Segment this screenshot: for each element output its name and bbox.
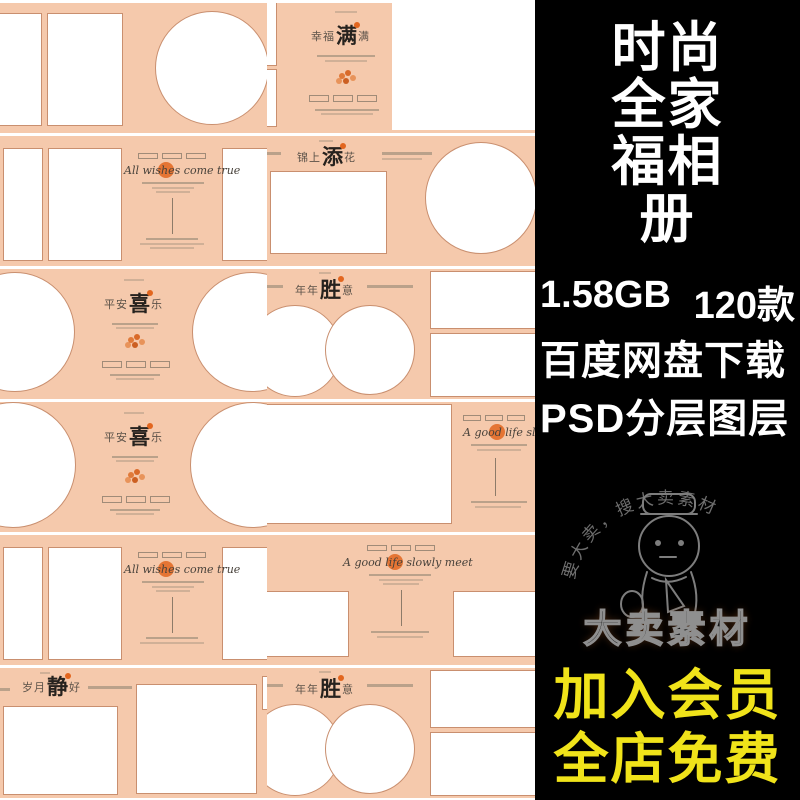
album-title-pre: 平安 bbox=[104, 296, 128, 312]
template-grid: 幸福 满 满 bbox=[0, 0, 535, 800]
photo-placeholder-circle bbox=[155, 11, 267, 125]
decor-line bbox=[267, 684, 283, 687]
album-title-pre: 岁月 bbox=[22, 679, 46, 695]
watermark-brand: 大卖素材 bbox=[535, 598, 800, 653]
stamp-box bbox=[102, 361, 122, 368]
decor-line bbox=[382, 158, 422, 160]
product-promo-image: 幸福 满 满 bbox=[0, 0, 800, 800]
template-preview-r3c2: 年年 胜 意 bbox=[267, 269, 535, 399]
decor-line bbox=[319, 140, 333, 142]
stamp-box bbox=[357, 95, 377, 102]
decor-line bbox=[88, 686, 132, 689]
divider-line bbox=[401, 590, 402, 626]
album-title-big: 喜 bbox=[129, 426, 150, 447]
template-preview-r1c2: 幸福 满 满 bbox=[267, 3, 535, 133]
decor-line bbox=[124, 279, 144, 281]
stamp-box bbox=[415, 545, 435, 551]
decor-line bbox=[382, 152, 432, 155]
decor-line bbox=[335, 11, 357, 13]
album-title-big: 添 bbox=[322, 146, 343, 167]
template-row-6: 岁月 静 好 年年 胜 意 bbox=[0, 668, 535, 798]
file-format: PSD分层图层 bbox=[540, 386, 795, 444]
template-preview-r2c2: 锦上 添 花 bbox=[267, 136, 535, 266]
album-title-pre: 锦上 bbox=[297, 149, 321, 165]
stamp-box bbox=[309, 95, 329, 102]
album-title: 锦上 添 花 bbox=[297, 146, 356, 167]
template-preview-r5c1: All wishes come true bbox=[0, 535, 267, 665]
album-title: All wishes come true bbox=[124, 563, 240, 576]
product-title-line: 福相 bbox=[535, 134, 800, 191]
album-title: 年年 胜 意 bbox=[295, 678, 354, 699]
stamp-boxes bbox=[102, 496, 170, 503]
stamp-box bbox=[126, 496, 146, 503]
stamp-boxes bbox=[102, 361, 170, 368]
photo-placeholder bbox=[430, 732, 535, 796]
product-title: 时尚 全家 福相 册 bbox=[535, 20, 800, 248]
decor-line bbox=[319, 671, 331, 673]
template-row-2: All wishes come true 锦上 添 花 bbox=[0, 136, 535, 266]
decor-line bbox=[477, 449, 521, 451]
decor-line bbox=[267, 285, 283, 288]
decor-line bbox=[471, 444, 527, 446]
stamp-box bbox=[391, 545, 411, 551]
template-preview-r4c1: 平安 喜 乐 bbox=[0, 402, 267, 532]
decor-line bbox=[0, 688, 10, 691]
photo-placeholder bbox=[3, 706, 118, 795]
album-title-pre: 平安 bbox=[104, 429, 128, 445]
album-title-pre: 年年 bbox=[295, 282, 319, 298]
stamp-box bbox=[507, 415, 525, 421]
divider-line bbox=[172, 597, 173, 633]
photo-placeholder bbox=[430, 271, 535, 329]
photo-placeholder bbox=[136, 684, 257, 794]
album-title: 岁月 静 好 bbox=[22, 676, 81, 697]
decor-line bbox=[116, 460, 154, 462]
album-title-post: 意 bbox=[342, 282, 354, 298]
album-title-big: 胜 bbox=[320, 279, 341, 300]
stamp-boxes bbox=[463, 415, 525, 421]
photo-placeholder bbox=[270, 171, 387, 254]
decor-line bbox=[140, 642, 204, 644]
photo-placeholder bbox=[3, 547, 43, 660]
album-title-pre: 幸福 bbox=[311, 28, 335, 44]
style-count: 120款 bbox=[694, 274, 795, 329]
decor-line bbox=[475, 506, 521, 508]
decor-line bbox=[112, 323, 158, 325]
decor-line bbox=[321, 113, 373, 115]
template-row-5: All wishes come true A good life slowly … bbox=[0, 535, 535, 665]
decor-line bbox=[140, 243, 204, 245]
stamp-box bbox=[485, 415, 503, 421]
stamp-box bbox=[126, 361, 146, 368]
decor-line bbox=[156, 191, 190, 193]
album-title-post: 好 bbox=[69, 679, 81, 695]
download-method: 百度网盘下载 bbox=[540, 328, 795, 386]
photo-placeholder bbox=[3, 148, 43, 261]
photo-placeholder bbox=[267, 69, 277, 127]
decor-line bbox=[315, 109, 379, 111]
template-preview-r3c1: 平安 喜 乐 bbox=[0, 269, 267, 399]
photo-placeholder bbox=[267, 404, 452, 524]
decor-line bbox=[142, 581, 204, 583]
template-row-4: 平安 喜 乐 A good life slowly me bbox=[0, 402, 535, 532]
album-title: All wishes come true bbox=[124, 164, 240, 177]
file-size-row: 1.58GB 120款 bbox=[540, 274, 795, 329]
decor-line bbox=[116, 378, 154, 380]
decor-line bbox=[116, 513, 154, 515]
stamp-boxes bbox=[367, 545, 435, 551]
photo-placeholder bbox=[430, 333, 535, 397]
decor-line bbox=[379, 579, 423, 581]
photo-placeholder bbox=[48, 547, 122, 660]
decor-line bbox=[383, 583, 419, 585]
stamp-box bbox=[162, 153, 182, 159]
stamp-box bbox=[186, 552, 206, 558]
album-title-big: 胜 bbox=[320, 678, 341, 699]
album-title-post: 花 bbox=[344, 149, 356, 165]
album-title: 年年 胜 意 bbox=[295, 279, 354, 300]
decor-line bbox=[146, 238, 198, 240]
stamp-box bbox=[162, 552, 182, 558]
album-title: 平安 喜 乐 bbox=[104, 293, 163, 314]
decor-line bbox=[124, 412, 144, 414]
decor-line bbox=[116, 327, 154, 329]
decor-line bbox=[377, 636, 423, 638]
stamp-boxes bbox=[138, 153, 206, 159]
template-row-3: 平安 喜 乐 年年 胜 意 bbox=[0, 269, 535, 399]
stamp-boxes bbox=[309, 95, 377, 102]
photo-placeholder bbox=[453, 591, 535, 657]
album-title-big: 满 bbox=[336, 25, 357, 46]
album-title-post: 乐 bbox=[151, 429, 163, 445]
template-preview-r4c2: A good life slowly meet bbox=[267, 402, 535, 532]
stamp-box bbox=[102, 496, 122, 503]
decor-line bbox=[150, 247, 194, 249]
photo-placeholder bbox=[48, 148, 122, 261]
photo-placeholder-circle bbox=[192, 272, 267, 392]
decor-line bbox=[317, 55, 375, 57]
product-title-line: 时尚 bbox=[535, 20, 800, 77]
template-row-1: 幸福 满 满 bbox=[0, 3, 535, 133]
decor-line bbox=[367, 684, 413, 687]
decor-line bbox=[319, 272, 331, 274]
photo-placeholder bbox=[47, 13, 123, 126]
stamp-box bbox=[150, 496, 170, 503]
decor-line bbox=[112, 456, 158, 458]
stamp-box bbox=[138, 153, 158, 159]
photo-placeholder-circle bbox=[0, 272, 75, 392]
album-title-big: 喜 bbox=[129, 293, 150, 314]
decor-line bbox=[369, 574, 431, 576]
decor-line bbox=[367, 285, 413, 288]
photo-placeholder bbox=[0, 13, 42, 126]
album-title-big: 静 bbox=[47, 676, 68, 697]
photo-placeholder-circle bbox=[425, 142, 535, 254]
template-preview-r1c1 bbox=[0, 3, 267, 133]
decor-line bbox=[471, 501, 527, 503]
template-preview-r2c1: All wishes come true bbox=[0, 136, 267, 266]
template-preview-r6c2: 年年 胜 意 bbox=[267, 668, 535, 798]
flower-icon bbox=[128, 337, 134, 343]
album-title-post: 乐 bbox=[151, 296, 163, 312]
decor-line bbox=[267, 152, 281, 155]
promo-store-free: 全店免费 bbox=[535, 714, 800, 794]
page-blank-area bbox=[392, 3, 535, 130]
album-title-post: 意 bbox=[342, 681, 354, 697]
watermark: 要大卖，搜大卖素材 大卖素材 bbox=[535, 452, 800, 647]
decor-line bbox=[156, 590, 190, 592]
info-panel: 时尚 全家 福相 册 1.58GB 120款 百度网盘下载 PSD分层图层 要大… bbox=[535, 0, 800, 800]
flower-icon bbox=[339, 73, 345, 79]
decor-line bbox=[152, 586, 194, 588]
stamp-box bbox=[333, 95, 353, 102]
stamp-box bbox=[186, 153, 206, 159]
decor-line bbox=[142, 182, 204, 184]
album-title-pre: 年年 bbox=[295, 681, 319, 697]
decor-line bbox=[146, 637, 198, 639]
product-title-line: 册 bbox=[535, 191, 800, 248]
photo-placeholder bbox=[267, 3, 277, 66]
photo-placeholder-circle bbox=[325, 704, 415, 794]
photo-placeholder-circle bbox=[0, 402, 76, 528]
stamp-box bbox=[150, 361, 170, 368]
template-preview-r5c2: A good life slowly meet bbox=[267, 535, 535, 665]
photo-placeholder-circle bbox=[190, 402, 267, 528]
photo-placeholder bbox=[430, 670, 535, 728]
album-title: A good life slowly meet bbox=[463, 426, 535, 439]
album-title: 幸福 满 满 bbox=[311, 25, 370, 46]
divider-line bbox=[172, 198, 173, 234]
stamp-box bbox=[463, 415, 481, 421]
album-title-post: 满 bbox=[358, 28, 370, 44]
stamp-boxes bbox=[138, 552, 206, 558]
decor-line bbox=[371, 631, 429, 633]
template-preview-r6c1: 岁月 静 好 bbox=[0, 668, 267, 798]
divider-line bbox=[495, 458, 496, 496]
product-title-line: 全家 bbox=[535, 77, 800, 134]
stamp-box bbox=[367, 545, 387, 551]
decor-line bbox=[110, 509, 160, 511]
photo-placeholder-circle bbox=[325, 305, 415, 395]
stamp-box bbox=[138, 552, 158, 558]
decor-line bbox=[152, 187, 194, 189]
flower-icon bbox=[128, 472, 134, 478]
album-title: 平安 喜 乐 bbox=[104, 426, 163, 447]
file-size: 1.58GB bbox=[540, 274, 671, 329]
decor-line bbox=[110, 374, 160, 376]
photo-placeholder bbox=[267, 591, 349, 657]
decor-line bbox=[325, 60, 367, 62]
album-title: A good life slowly meet bbox=[343, 556, 473, 569]
